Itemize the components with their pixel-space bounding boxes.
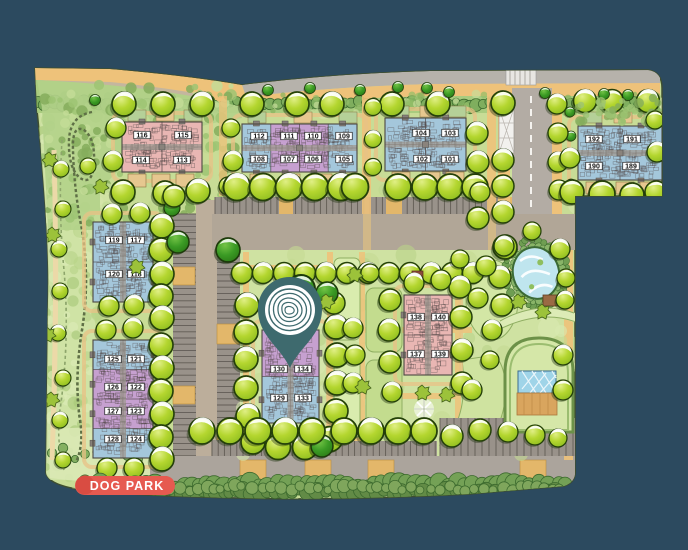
svg-text:124: 124 (130, 437, 142, 444)
svg-text:117: 117 (130, 238, 141, 245)
svg-text:DOG PARK: DOG PARK (90, 479, 164, 493)
svg-text:126: 126 (107, 385, 119, 392)
svg-text:109: 109 (338, 134, 350, 141)
svg-text:111: 111 (284, 134, 295, 141)
svg-text:192: 192 (588, 137, 600, 144)
svg-text:119: 119 (108, 238, 119, 245)
svg-text:102: 102 (416, 157, 428, 164)
svg-text:128: 128 (107, 437, 119, 444)
svg-text:123: 123 (130, 409, 142, 416)
svg-text:113: 113 (176, 158, 187, 165)
svg-text:125: 125 (107, 357, 119, 364)
svg-text:106: 106 (307, 157, 319, 164)
svg-text:115: 115 (177, 133, 188, 140)
svg-text:189: 189 (625, 164, 637, 171)
svg-text:127: 127 (107, 409, 119, 416)
svg-text:114: 114 (135, 158, 146, 165)
svg-text:107: 107 (283, 157, 295, 164)
svg-text:105: 105 (338, 157, 350, 164)
svg-text:116: 116 (136, 133, 147, 140)
svg-text:130: 130 (273, 367, 285, 374)
svg-text:138: 138 (410, 315, 422, 322)
svg-text:140: 140 (434, 315, 446, 322)
svg-text:134: 134 (297, 367, 309, 374)
svg-text:104: 104 (415, 131, 427, 138)
svg-text:133: 133 (297, 396, 309, 403)
svg-text:103: 103 (444, 131, 456, 138)
svg-text:121: 121 (130, 357, 142, 364)
svg-text:191: 191 (626, 137, 638, 144)
svg-text:139: 139 (434, 352, 446, 359)
svg-text:190: 190 (588, 164, 600, 171)
svg-text:120: 120 (108, 272, 120, 279)
svg-text:137: 137 (410, 352, 422, 359)
svg-text:122: 122 (130, 385, 142, 392)
svg-text:112: 112 (253, 134, 264, 141)
svg-text:129: 129 (273, 396, 285, 403)
svg-text:101: 101 (444, 157, 456, 164)
svg-text:108: 108 (253, 157, 265, 164)
svg-text:110: 110 (307, 134, 318, 141)
